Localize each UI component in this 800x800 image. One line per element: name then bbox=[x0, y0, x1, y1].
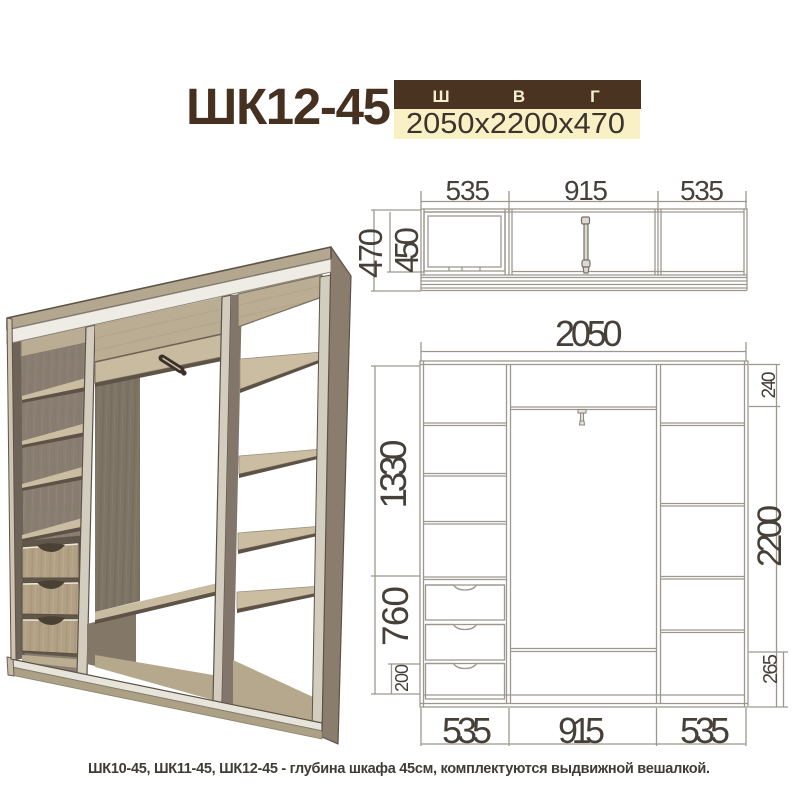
svg-text:200: 200 bbox=[392, 664, 412, 692]
svg-text:450: 450 bbox=[388, 227, 425, 273]
svg-text:265: 265 bbox=[760, 654, 782, 684]
svg-text:Ш: Ш bbox=[432, 87, 449, 106]
svg-text:240: 240 bbox=[759, 372, 780, 399]
svg-text:1330: 1330 bbox=[373, 440, 414, 509]
svg-text:915: 915 bbox=[564, 175, 608, 206]
svg-text:ШК10-45, ШК11-45, ШК12-45 - гл: ШК10-45, ШК11-45, ШК12-45 - глубина шкаф… bbox=[88, 761, 710, 777]
svg-text:Г: Г bbox=[590, 87, 600, 106]
svg-text:535: 535 bbox=[446, 175, 491, 206]
svg-text:535: 535 bbox=[680, 710, 730, 751]
svg-text:2200: 2200 bbox=[751, 505, 789, 567]
svg-text:2050: 2050 bbox=[555, 313, 623, 354]
svg-text:760: 760 bbox=[375, 586, 416, 646]
svg-text:В: В bbox=[513, 87, 525, 106]
svg-text:535: 535 bbox=[680, 175, 724, 206]
svg-text:535: 535 bbox=[442, 710, 492, 751]
svg-text:470: 470 bbox=[352, 228, 389, 278]
svg-text:2050х2200х470: 2050х2200х470 bbox=[406, 108, 625, 140]
svg-text:915: 915 bbox=[558, 710, 605, 751]
svg-text:ШК12-45: ШК12-45 bbox=[186, 78, 391, 135]
